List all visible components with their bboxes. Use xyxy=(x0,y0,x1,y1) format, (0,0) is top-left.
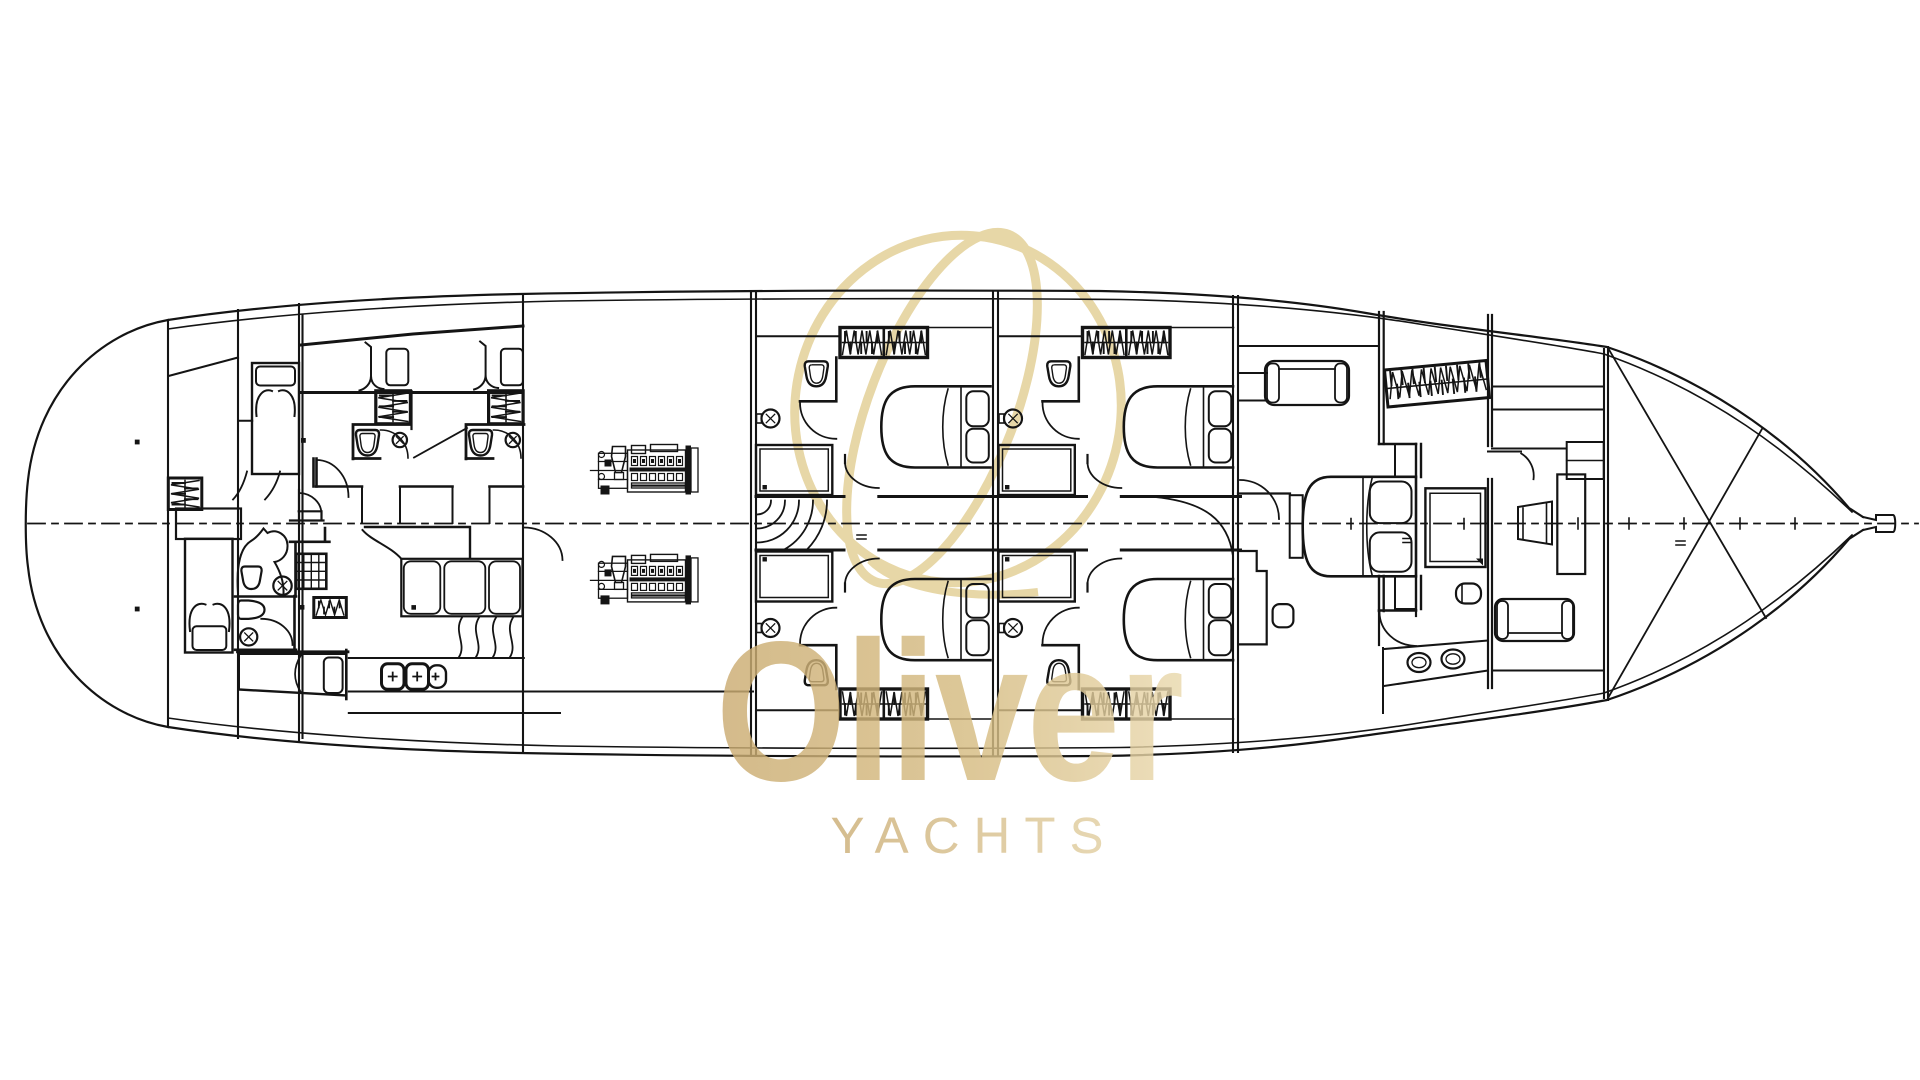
svg-text:YACHTS: YACHTS xyxy=(830,807,1117,864)
svg-text:Oliver: Oliver xyxy=(716,601,1183,824)
